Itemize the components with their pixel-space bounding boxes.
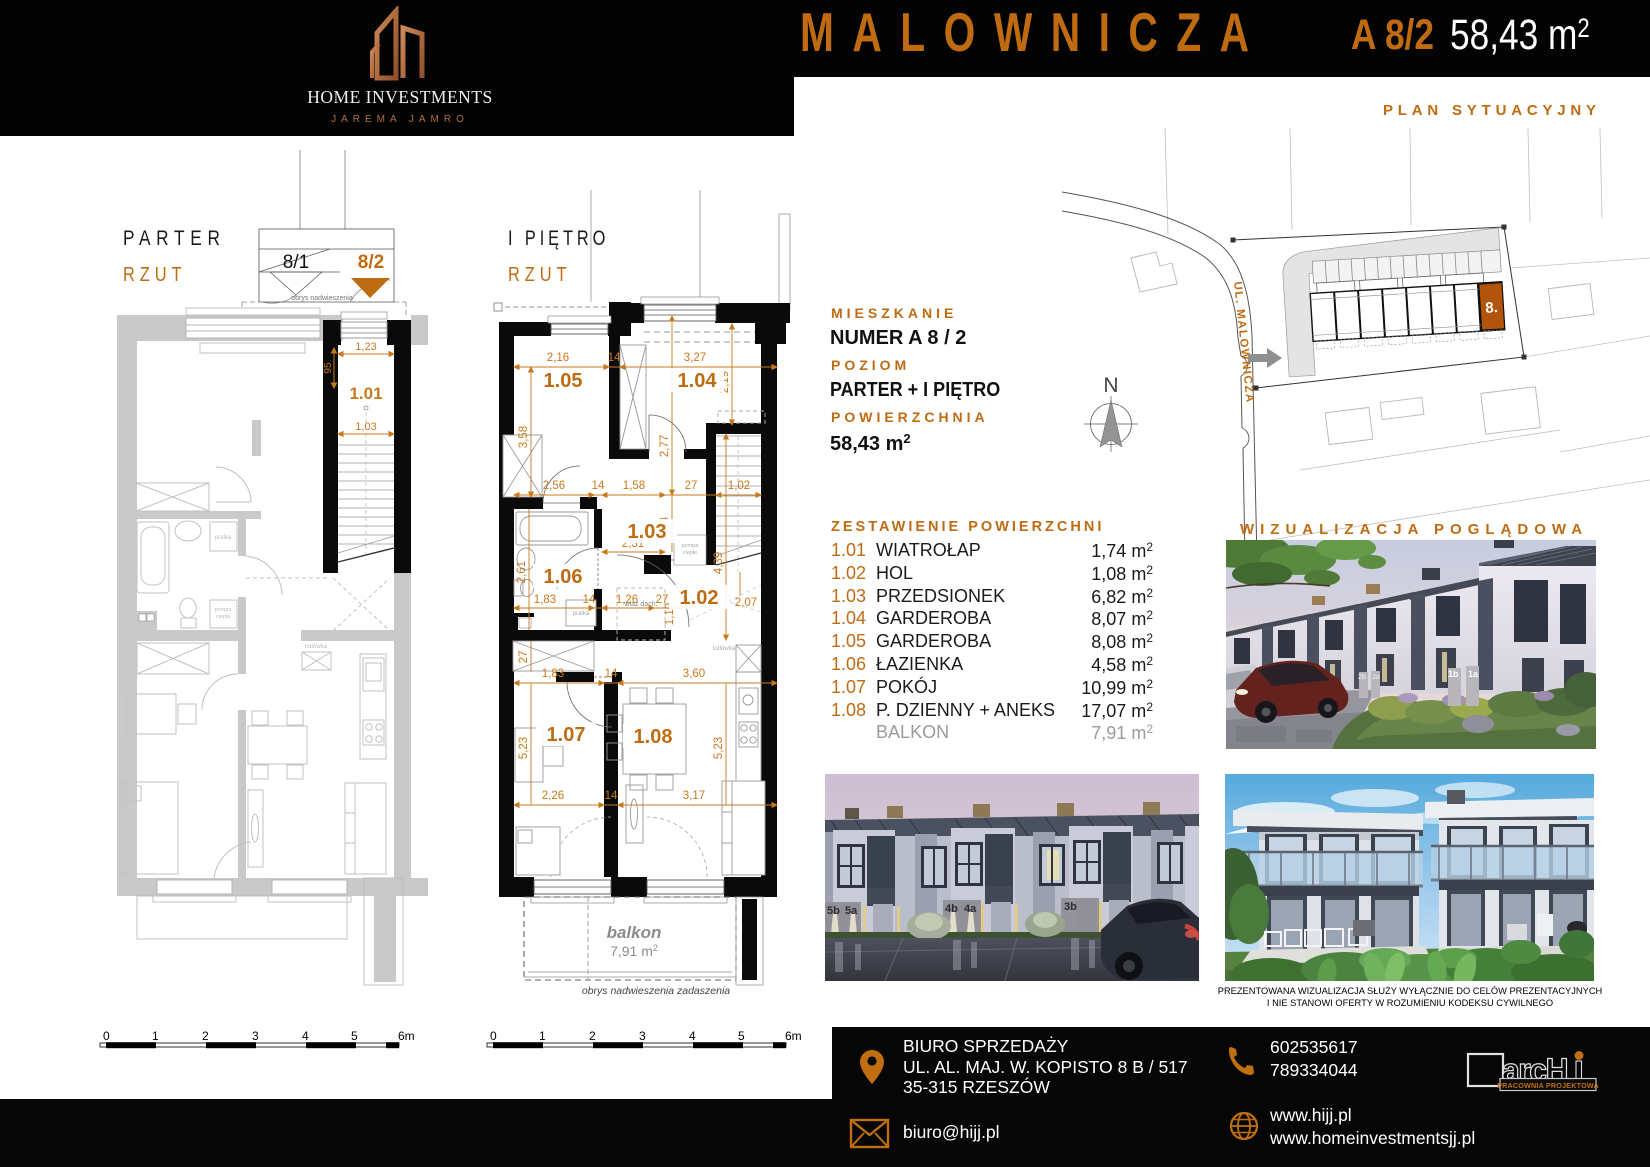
- svg-text:3,58: 3,58: [518, 426, 530, 448]
- svg-text:2,56: 2,56: [543, 480, 565, 492]
- svg-text:1: 1: [152, 1029, 159, 1043]
- svg-text:14: 14: [605, 790, 618, 802]
- svg-text:14: 14: [608, 352, 621, 364]
- svg-text:6m: 6m: [398, 1029, 415, 1043]
- svg-text:pompa: pompa: [682, 543, 700, 549]
- svg-text:1,02: 1,02: [728, 480, 750, 492]
- svg-text:5,23: 5,23: [518, 737, 530, 759]
- svg-text:1,58: 1,58: [623, 480, 645, 492]
- svg-text:JAREMA JAMRO: JAREMA JAMRO: [331, 114, 469, 125]
- svg-text:8/2: 8/2: [358, 252, 384, 273]
- svg-text:1,83: 1,83: [542, 668, 564, 680]
- svg-text:14: 14: [605, 668, 618, 680]
- svg-text:0: 0: [103, 1029, 110, 1043]
- svg-text:PRACOWNIA PROJEKTOWA: PRACOWNIA PROJEKTOWA: [1497, 1081, 1599, 1090]
- svg-text:2: 2: [202, 1029, 209, 1043]
- svg-text:3,17: 3,17: [683, 790, 705, 802]
- svg-text:14: 14: [592, 480, 605, 492]
- svg-text:N: N: [1103, 374, 1118, 397]
- svg-text:1,03: 1,03: [355, 421, 376, 433]
- svg-text:1.01: 1.01: [349, 384, 382, 403]
- svg-text:1,23: 1,23: [355, 341, 376, 353]
- svg-text:14: 14: [583, 594, 596, 606]
- svg-text:1.08: 1.08: [634, 726, 673, 748]
- svg-text:7,91 m2: 7,91 m2: [610, 943, 658, 959]
- svg-text:1.06: 1.06: [544, 566, 583, 588]
- svg-text:27: 27: [518, 651, 530, 664]
- svg-text:5: 5: [351, 1029, 358, 1043]
- svg-text:3,27: 3,27: [684, 352, 706, 364]
- svg-text:2,77: 2,77: [659, 435, 671, 457]
- svg-text:95: 95: [323, 362, 334, 374]
- svg-text:4,39: 4,39: [713, 552, 725, 574]
- svg-text:pralka: pralka: [215, 535, 232, 541]
- svg-text:2,16: 2,16: [547, 352, 569, 364]
- svg-text:ciepłe: ciepłe: [683, 550, 697, 556]
- svg-text:0: 0: [490, 1029, 497, 1043]
- svg-text:3: 3: [639, 1029, 646, 1043]
- svg-text:pompa: pompa: [215, 607, 233, 613]
- svg-text:obrys nadwieszenia: obrys nadwieszenia: [291, 295, 353, 302]
- svg-text:8/1: 8/1: [283, 252, 309, 273]
- svg-text:1.02: 1.02: [680, 587, 719, 609]
- svg-text:3b: 3b: [1064, 901, 1077, 913]
- svg-text:8.: 8.: [1485, 299, 1499, 317]
- svg-text:1a: 1a: [1468, 669, 1479, 679]
- svg-text:2,07: 2,07: [735, 597, 757, 609]
- svg-text:lodówka: lodówka: [713, 646, 736, 652]
- svg-text:1,26: 1,26: [616, 594, 638, 606]
- svg-text:1: 1: [539, 1029, 546, 1043]
- svg-text:1.03: 1.03: [628, 521, 667, 543]
- svg-text:4: 4: [302, 1029, 309, 1043]
- svg-text:lodówka: lodówka: [305, 644, 328, 650]
- svg-text:5,23: 5,23: [713, 737, 725, 759]
- svg-text:balkon: balkon: [607, 923, 662, 942]
- svg-text:6m: 6m: [785, 1029, 802, 1043]
- svg-text:3,60: 3,60: [683, 668, 705, 680]
- svg-text:1b: 1b: [1448, 669, 1459, 679]
- svg-text:4: 4: [689, 1029, 696, 1043]
- svg-text:2: 2: [589, 1029, 596, 1043]
- svg-text:2,61: 2,61: [516, 561, 528, 583]
- svg-text:HOME INVESTMENTS: HOME INVESTMENTS: [307, 87, 492, 107]
- svg-text:1,83: 1,83: [534, 594, 556, 606]
- svg-text:2,26: 2,26: [542, 790, 564, 802]
- svg-text:1.07: 1.07: [547, 724, 586, 746]
- svg-text:2b: 2b: [1358, 674, 1366, 681]
- svg-text:2a: 2a: [1372, 674, 1380, 681]
- svg-text:27: 27: [685, 480, 698, 492]
- svg-text:pralka: pralka: [573, 611, 590, 617]
- svg-text:obrys nadwieszenia zadaszenia: obrys nadwieszenia zadaszenia: [582, 985, 730, 997]
- svg-text:1.05: 1.05: [544, 370, 583, 392]
- svg-text:1.04: 1.04: [678, 370, 718, 392]
- svg-text:ciepła: ciepła: [216, 614, 231, 620]
- svg-text:5: 5: [738, 1029, 745, 1043]
- svg-text:3: 3: [252, 1029, 259, 1043]
